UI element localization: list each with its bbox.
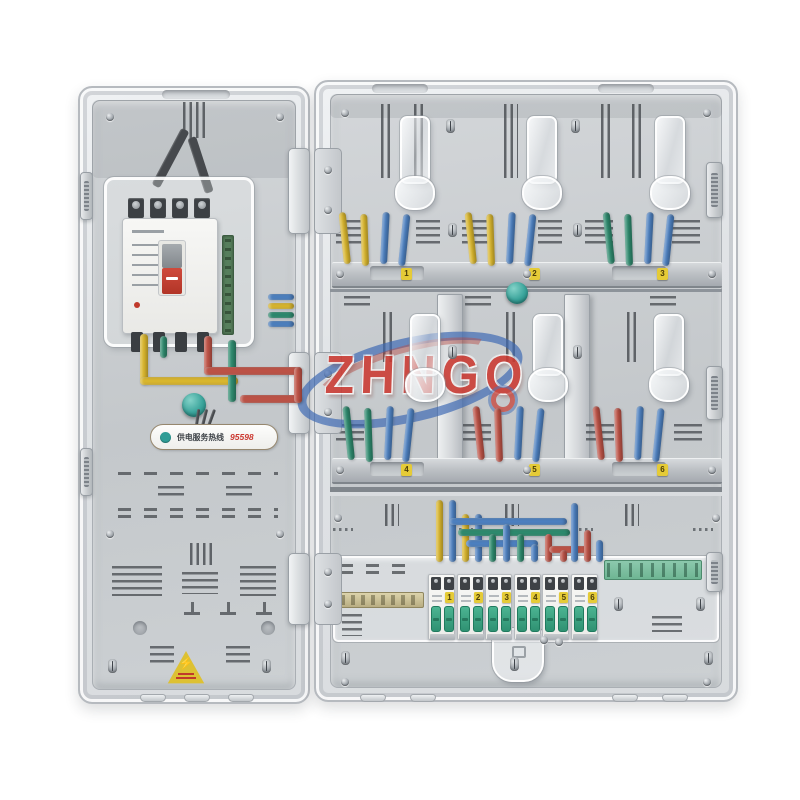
mcb-terminal-bottom bbox=[487, 634, 512, 640]
mcb-terminal bbox=[587, 577, 597, 590]
vent-slots bbox=[344, 296, 370, 308]
mcb-label-line bbox=[546, 600, 556, 602]
screw bbox=[106, 113, 114, 121]
distribution-wire bbox=[436, 500, 443, 562]
screw bbox=[540, 636, 548, 644]
mccb-terminal-screw bbox=[154, 201, 162, 209]
mcb-breaker: 6 bbox=[571, 574, 598, 640]
vent-slots-block bbox=[182, 572, 218, 594]
knockout-mark bbox=[220, 602, 236, 615]
breaker-toggle bbox=[587, 606, 597, 632]
oval-screw bbox=[573, 223, 582, 237]
vent-slot-column bbox=[506, 312, 519, 362]
mcb-terminal bbox=[574, 577, 584, 590]
distribution-wire bbox=[466, 540, 538, 547]
breaker-toggle bbox=[488, 606, 498, 632]
vent-slot-column bbox=[625, 504, 639, 526]
left-panel-wire bbox=[268, 303, 294, 309]
breaker-number-sticker: 6 bbox=[588, 592, 597, 603]
screw bbox=[703, 109, 711, 117]
bay-number-sticker: 4 bbox=[401, 464, 412, 476]
distribution-wire bbox=[503, 524, 510, 562]
vent-slot-column bbox=[601, 104, 614, 178]
oval-screw bbox=[262, 659, 271, 673]
din-rail bbox=[338, 592, 424, 608]
mcb-label-line bbox=[546, 595, 556, 597]
right-door-clasp bbox=[706, 552, 723, 592]
vent-slots bbox=[465, 296, 491, 308]
breaker-number-sticker: 2 bbox=[474, 592, 483, 603]
mcb-terminal bbox=[558, 577, 568, 590]
bottom-rib bbox=[228, 694, 254, 702]
screw bbox=[708, 466, 716, 474]
vent-slot-column bbox=[383, 312, 396, 362]
hotline-icon bbox=[160, 432, 171, 443]
rail-recess bbox=[370, 462, 424, 476]
distribution-wire bbox=[596, 540, 603, 562]
breaker-toggle bbox=[473, 606, 483, 632]
test-button bbox=[182, 393, 206, 417]
meter-seal-cover-tip bbox=[650, 176, 690, 210]
vent-grille bbox=[226, 646, 250, 664]
screw bbox=[555, 638, 563, 646]
meter-seal-cover-tip bbox=[522, 176, 562, 210]
rail-recess bbox=[370, 266, 424, 280]
mcb-terminal-bottom bbox=[459, 634, 484, 640]
vent-slot-column bbox=[627, 312, 640, 362]
screw bbox=[712, 514, 720, 522]
oval-screw bbox=[696, 597, 705, 611]
mcb-label-line bbox=[575, 595, 585, 597]
hinge bbox=[314, 352, 342, 434]
mount-recess bbox=[261, 621, 275, 635]
bay-number-sticker: 3 bbox=[657, 268, 668, 280]
hinge-screw bbox=[324, 166, 332, 174]
mccb-terminal-screw bbox=[198, 201, 206, 209]
mcb-terminal bbox=[501, 577, 511, 590]
meter-seal-cover-tip bbox=[405, 368, 445, 402]
breaker-toggle bbox=[444, 606, 454, 632]
left-panel-wire bbox=[140, 377, 238, 385]
vent-slots bbox=[674, 424, 702, 444]
distribution-wire bbox=[458, 529, 570, 536]
mcb-terminal bbox=[545, 577, 555, 590]
oval-screw bbox=[448, 223, 457, 237]
mccb-label-line bbox=[132, 230, 164, 233]
vent-dot-row bbox=[333, 528, 353, 531]
vent-slots bbox=[672, 220, 700, 244]
metering-pcb bbox=[222, 235, 234, 335]
mount-recess bbox=[133, 621, 147, 635]
left-door-clasp bbox=[80, 448, 93, 496]
screw bbox=[336, 270, 344, 278]
left-panel-wire bbox=[268, 312, 294, 318]
meter-seal-cover-tip bbox=[528, 368, 568, 402]
bottom-rib bbox=[662, 694, 688, 702]
hinge bbox=[314, 553, 342, 625]
hinge-screw bbox=[324, 370, 332, 378]
mcb-terminal bbox=[488, 577, 498, 590]
mcb-label-line bbox=[575, 600, 585, 602]
mccb-toggle-red bbox=[162, 268, 182, 294]
left-panel-wire bbox=[160, 336, 167, 358]
mcb-label-line bbox=[489, 600, 499, 602]
breaker-toggle bbox=[545, 606, 555, 632]
left-top-handle-notch bbox=[162, 90, 230, 99]
vent-slots-center bbox=[190, 543, 212, 565]
mccb-terminal-screw bbox=[132, 201, 140, 209]
warning-text-line bbox=[176, 677, 196, 679]
bottom-rib bbox=[184, 694, 210, 702]
mcb-breaker: 5 bbox=[542, 574, 569, 640]
distribution-wire bbox=[517, 534, 524, 562]
oval-screw bbox=[510, 657, 519, 671]
distribution-wire bbox=[449, 500, 456, 562]
hinge-screw bbox=[324, 206, 332, 214]
bay-number-sticker: 1 bbox=[401, 268, 412, 280]
hotline-label: 供电服务热线 95598 bbox=[150, 424, 278, 450]
knockout-mark bbox=[256, 602, 272, 615]
mcb-terminal-bottom bbox=[516, 634, 541, 640]
hinge-screw bbox=[324, 568, 332, 576]
mcb-terminal bbox=[473, 577, 483, 590]
mcb-label-line bbox=[461, 600, 471, 602]
bottom-rib bbox=[612, 694, 638, 702]
mcb-terminal-bottom bbox=[430, 634, 455, 640]
vent-slots bbox=[226, 486, 252, 498]
breaker-toggle bbox=[517, 606, 527, 632]
terminal-strip bbox=[604, 560, 702, 580]
oval-screw bbox=[108, 659, 117, 673]
vent-slots-block bbox=[240, 566, 276, 596]
right-top-handle-notch bbox=[598, 84, 654, 93]
mcb-label-line bbox=[432, 595, 442, 597]
mcb-breaker: 3 bbox=[485, 574, 512, 640]
vent-slot-column bbox=[381, 104, 394, 178]
left-panel-wire bbox=[268, 294, 294, 300]
mccb-label-line bbox=[132, 244, 158, 246]
mcb-terminal bbox=[517, 577, 527, 590]
screw bbox=[276, 113, 284, 121]
breaker-toggle bbox=[558, 606, 568, 632]
mcb-label-line bbox=[461, 595, 471, 597]
mcb-terminal bbox=[431, 577, 441, 590]
tray-vent bbox=[342, 614, 362, 636]
bottom-rib bbox=[140, 694, 166, 702]
oval-screw bbox=[341, 651, 350, 665]
meter-seal-cover bbox=[654, 314, 684, 376]
right-door-clasp bbox=[706, 366, 723, 420]
mccb-label-line bbox=[132, 284, 158, 286]
mccb-label-line bbox=[132, 274, 158, 276]
breaker-number-sticker: 1 bbox=[445, 592, 454, 603]
left-panel-wire bbox=[204, 367, 302, 375]
breaker-number-sticker: 5 bbox=[559, 592, 568, 603]
mcb-breaker: 1 bbox=[428, 574, 455, 640]
bottom-rib bbox=[360, 694, 386, 702]
vent-grille bbox=[150, 646, 174, 664]
screw bbox=[336, 466, 344, 474]
vent-dot-row bbox=[693, 528, 713, 531]
screw bbox=[276, 530, 284, 538]
hotline-number: 95598 bbox=[230, 432, 254, 442]
vent-dash-row bbox=[118, 508, 278, 511]
vent-slots bbox=[538, 220, 562, 244]
meter-seal-cover-tip bbox=[395, 176, 435, 210]
meter-seal-cover bbox=[533, 314, 563, 376]
screw bbox=[334, 514, 342, 522]
breaker-toggle bbox=[501, 606, 511, 632]
meter-seal-cover-tip bbox=[649, 368, 689, 402]
breaker-toggle bbox=[574, 606, 584, 632]
screw bbox=[341, 109, 349, 117]
oval-screw bbox=[704, 651, 713, 665]
seal-knob bbox=[506, 282, 528, 304]
vent-dash-row bbox=[118, 472, 278, 475]
vent-slots-block bbox=[112, 566, 162, 596]
mcb-label-line bbox=[518, 595, 528, 597]
breaker-number-sticker: 4 bbox=[531, 592, 540, 603]
mccb-toggle-mark bbox=[166, 277, 178, 280]
screw bbox=[106, 530, 114, 538]
distribution-wire bbox=[571, 503, 578, 562]
breaker-toggle bbox=[431, 606, 441, 632]
vent-slots bbox=[416, 220, 440, 244]
screw bbox=[523, 466, 531, 474]
mcb-terminal bbox=[530, 577, 540, 590]
mcb-label-line bbox=[432, 600, 442, 602]
mccb-terminal-screw bbox=[176, 201, 184, 209]
breaker-toggle bbox=[530, 606, 540, 632]
distribution-wire bbox=[584, 530, 591, 562]
hinge-screw bbox=[324, 600, 332, 608]
mcb-terminal-bottom bbox=[573, 634, 598, 640]
tray-dash-row bbox=[340, 564, 410, 567]
section-seam-light bbox=[330, 492, 722, 496]
mccb-toggle-handle bbox=[162, 244, 182, 268]
right-top-handle-notch bbox=[372, 84, 428, 93]
distribution-wire bbox=[549, 546, 589, 553]
hinge bbox=[288, 148, 310, 234]
screw bbox=[341, 678, 349, 686]
meter-seal-cover bbox=[400, 116, 430, 184]
screw bbox=[523, 270, 531, 278]
oval-screw bbox=[571, 119, 580, 133]
mcb-breaker: 4 bbox=[514, 574, 541, 640]
vent-slot-column bbox=[504, 104, 518, 178]
mccb-label-line bbox=[132, 254, 158, 256]
oval-screw bbox=[614, 597, 623, 611]
mcb-label-line bbox=[489, 595, 499, 597]
hinge-screw bbox=[324, 408, 332, 416]
oval-screw bbox=[573, 345, 582, 359]
left-panel-wire bbox=[240, 395, 302, 403]
breaker-toggle bbox=[460, 606, 470, 632]
mcb-breaker: 2 bbox=[457, 574, 484, 640]
distribution-wire bbox=[560, 550, 567, 562]
hinge bbox=[314, 148, 342, 234]
left-panel-wire bbox=[268, 321, 294, 327]
warning-text-line bbox=[178, 673, 194, 675]
tray-vent bbox=[652, 616, 682, 632]
mcb-terminal bbox=[444, 577, 454, 590]
meter-seal-cover bbox=[527, 116, 557, 184]
hotline-text: 供电服务热线 bbox=[177, 431, 224, 442]
mcb-label-line bbox=[518, 600, 528, 602]
tray-dash-row bbox=[340, 571, 410, 574]
breaker-number-sticker: 3 bbox=[502, 592, 511, 603]
distribution-wire bbox=[489, 534, 496, 562]
bottom-rib bbox=[410, 694, 436, 702]
product-photo-meter-box: 供电服务热线 95598 ⚡ bbox=[0, 0, 800, 800]
mccb-lug bbox=[175, 332, 187, 352]
left-door-clasp bbox=[80, 172, 93, 220]
mccb-label-line bbox=[132, 264, 158, 266]
knockout-mark bbox=[184, 602, 200, 615]
vent-slot-column bbox=[632, 104, 645, 178]
meter-seal-cover bbox=[410, 314, 440, 376]
left-panel-wire bbox=[294, 367, 302, 403]
screw bbox=[703, 678, 711, 686]
distribution-wire bbox=[531, 544, 538, 562]
oval-screw bbox=[446, 119, 455, 133]
vent-slots bbox=[158, 486, 184, 498]
mcb-terminal bbox=[460, 577, 470, 590]
right-door-clasp bbox=[706, 162, 723, 218]
vent-slots bbox=[650, 296, 676, 308]
mccb-indicator-dot bbox=[134, 302, 140, 308]
hinge bbox=[288, 553, 310, 625]
vent-dash-row bbox=[118, 515, 278, 518]
screw bbox=[708, 270, 716, 278]
oval-screw bbox=[448, 345, 457, 359]
meter-seal-cover bbox=[655, 116, 685, 184]
bay-number-sticker: 6 bbox=[657, 464, 668, 476]
vent-slot-column bbox=[385, 504, 399, 526]
